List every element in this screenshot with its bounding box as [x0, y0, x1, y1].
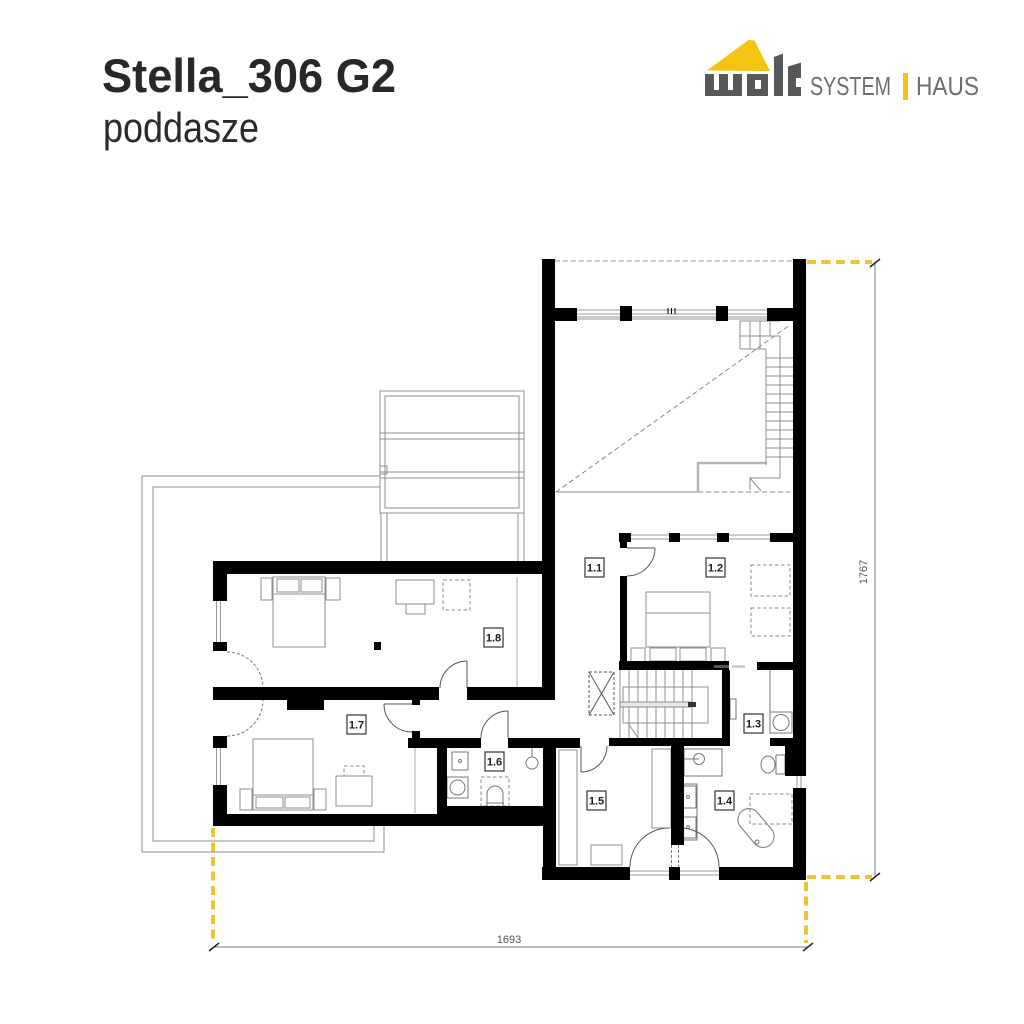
svg-text:1.7: 1.7 — [349, 720, 364, 732]
svg-text:1.1: 1.1 — [587, 563, 602, 575]
svg-text:1767: 1767 — [858, 560, 870, 584]
svg-text:HAUS: HAUS — [916, 71, 979, 101]
svg-text:poddasze: poddasze — [103, 104, 259, 151]
svg-text:1693: 1693 — [497, 934, 521, 946]
svg-text:1.5: 1.5 — [589, 796, 604, 808]
svg-text:SYSTEM: SYSTEM — [810, 71, 891, 101]
svg-text:1.8: 1.8 — [486, 633, 501, 645]
svg-text:1.4: 1.4 — [717, 796, 733, 808]
svg-text:1.2: 1.2 — [708, 563, 723, 575]
svg-text:1.6: 1.6 — [487, 757, 502, 769]
svg-text:1.3: 1.3 — [746, 719, 761, 731]
svg-text:Stella_306 G2: Stella_306 G2 — [102, 49, 396, 102]
